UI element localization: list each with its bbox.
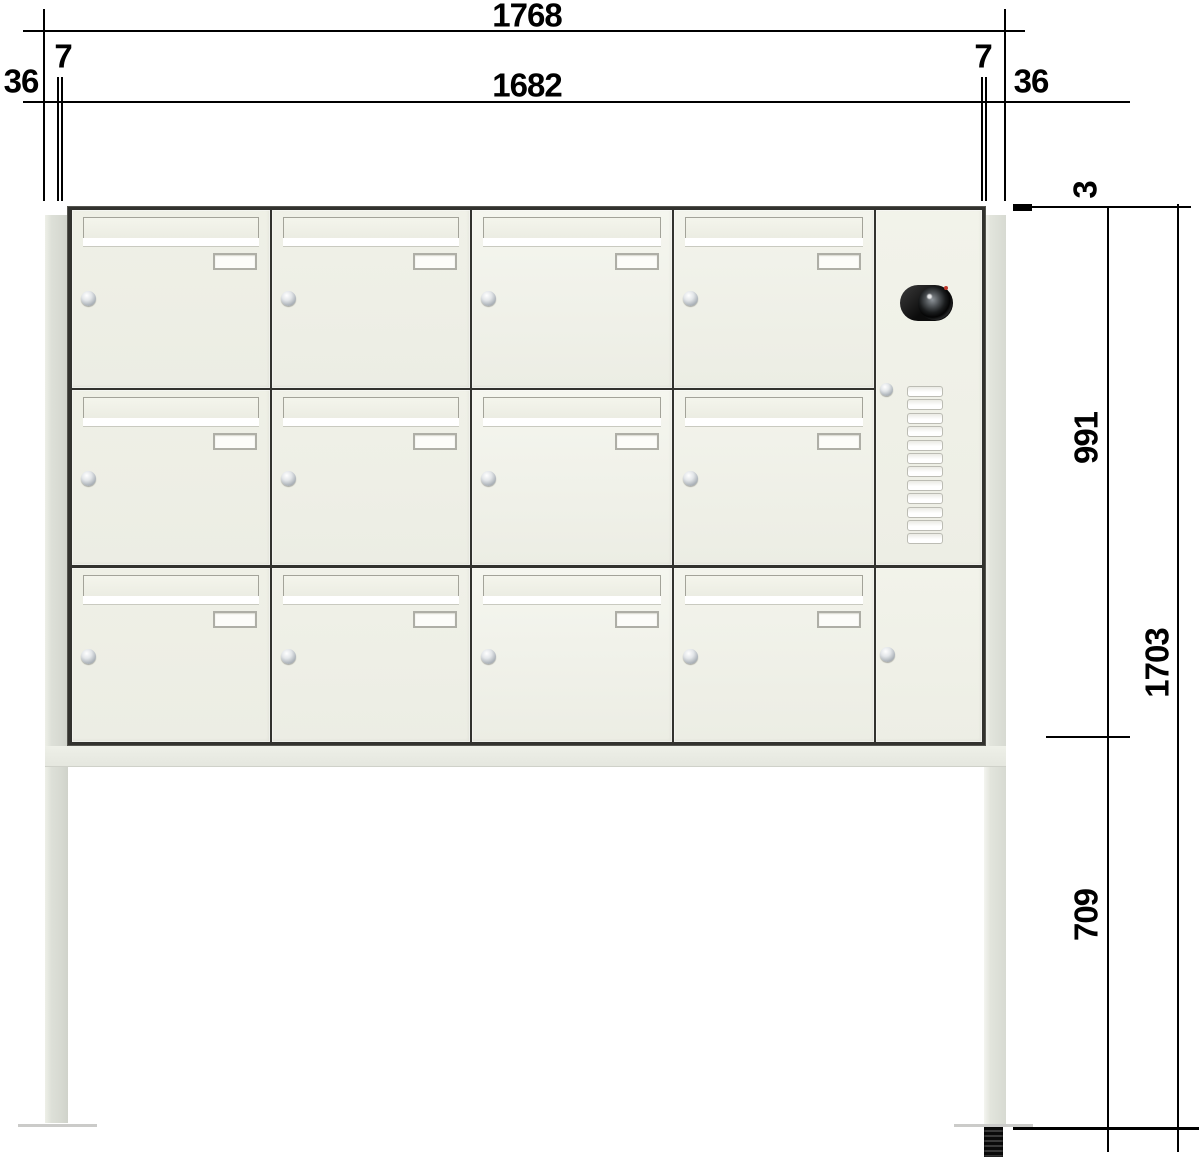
dim-line-top-gap — [1013, 206, 1191, 208]
name-plate — [413, 433, 457, 450]
dim-line-total-height — [1177, 204, 1179, 1152]
extension-line-right-outer — [1004, 9, 1006, 201]
name-plate — [817, 253, 861, 270]
flap-lip — [483, 596, 661, 604]
call-button-9 — [907, 493, 943, 504]
flap-lip — [483, 418, 661, 426]
extension-line-left-7a — [57, 77, 59, 201]
letter-flap — [83, 217, 259, 245]
mailbox-door-r2-c1 — [72, 390, 270, 565]
mailbox-lock — [281, 291, 296, 306]
dim-label-offset-right: 7 — [974, 40, 991, 73]
letter-flap — [283, 217, 459, 245]
dim-label-stand-height: 709 — [1070, 889, 1103, 941]
name-plate — [615, 611, 659, 628]
mailbox-door-r1-c3 — [472, 210, 672, 388]
letterbox-cabinet — [68, 207, 985, 745]
dim-label-side-left: 36 — [4, 65, 39, 98]
letter-flap — [283, 397, 459, 425]
flap-lip — [685, 418, 863, 426]
mailbox-door-r2-c3 — [472, 390, 672, 565]
name-plate — [817, 611, 861, 628]
mailbox-door-r3-c4 — [674, 568, 874, 742]
letter-flap — [483, 575, 661, 603]
letter-flap — [483, 217, 661, 245]
ground-line-left — [18, 1124, 97, 1127]
mailbox-lock — [481, 649, 496, 664]
flap-lip — [83, 596, 259, 604]
call-button-7 — [907, 466, 943, 477]
stand-leg-left — [45, 215, 68, 1123]
call-button-5 — [907, 440, 943, 451]
dim-tick-cabinet-bottom — [1046, 736, 1130, 738]
stand-leg-right — [984, 215, 1006, 1125]
letter-flap — [83, 397, 259, 425]
flap-lip — [83, 418, 259, 426]
letter-flap — [483, 397, 661, 425]
flap-lip — [283, 418, 459, 426]
dim-line-cabinet-stand — [1107, 207, 1109, 1152]
mailbox-door-r3-c3 — [472, 568, 672, 742]
extension-line-right-7b — [981, 77, 983, 201]
mailbox-lock — [281, 649, 296, 664]
mailbox-door-r1-c2 — [272, 210, 470, 388]
call-button-1 — [907, 386, 943, 397]
dim-line-ground — [1013, 1127, 1199, 1130]
mailbox-door-r2-c4 — [674, 390, 874, 565]
dim-tick-top-gap — [1013, 204, 1032, 211]
mailbox-lock — [81, 471, 96, 486]
camera-led-icon — [944, 286, 948, 290]
mailbox-lock — [683, 291, 698, 306]
mailbox-lock — [683, 471, 698, 486]
dim-line-body-width — [23, 101, 1130, 103]
mailbox-door-r2-c2 — [272, 390, 470, 565]
call-button-10 — [907, 507, 943, 518]
dim-label-body-width: 1682 — [492, 69, 561, 102]
name-plate — [213, 433, 257, 450]
extension-line-right-7a — [985, 77, 987, 201]
mailbox-lock — [81, 649, 96, 664]
mailbox-door-r3-c1 — [72, 568, 270, 742]
letter-flap — [685, 575, 863, 603]
name-plate — [413, 253, 457, 270]
mailbox-door-r3-c2 — [272, 568, 470, 742]
intercom-panel — [876, 210, 982, 565]
intercom-bottom-lock — [880, 647, 895, 662]
dim-label-top-gap: 3 — [1069, 181, 1102, 198]
dim-label-cabinet-height: 991 — [1070, 412, 1103, 464]
flap-lip — [685, 238, 863, 246]
name-plate — [615, 433, 659, 450]
call-button-12 — [907, 533, 943, 544]
call-button-6 — [907, 453, 943, 464]
flap-lip — [685, 596, 863, 604]
dim-label-total-height: 1703 — [1141, 628, 1174, 697]
name-plate — [213, 253, 257, 270]
extension-line-left-7b — [61, 77, 63, 201]
call-button-4 — [907, 426, 943, 437]
dim-label-overall-width: 1768 — [492, 0, 561, 32]
technical-drawing-canvas: 1768 1682 7 7 36 36 3 991 709 1703 — [0, 0, 1200, 1161]
flap-lip — [83, 238, 259, 246]
dim-label-offset-left: 7 — [54, 40, 71, 73]
flap-lip — [283, 238, 459, 246]
call-button-11 — [907, 520, 943, 531]
flap-lip — [283, 596, 459, 604]
call-button-8 — [907, 480, 943, 491]
mailbox-lock — [481, 291, 496, 306]
call-button-list — [907, 386, 943, 544]
stand-crossbar — [45, 746, 1006, 767]
camera-lens-icon — [918, 286, 952, 320]
mailbox-lock — [683, 649, 698, 664]
intercom-camera — [900, 285, 953, 321]
letter-flap — [283, 575, 459, 603]
mailbox-door-r1-c1 — [72, 210, 270, 388]
extension-line-left-outer — [43, 9, 45, 201]
letter-flap — [685, 217, 863, 245]
call-button-3 — [907, 413, 943, 424]
mailbox-door-r1-c4 — [674, 210, 874, 388]
flap-lip — [483, 238, 661, 246]
anchor-bolt — [984, 1127, 1003, 1157]
name-plate — [817, 433, 861, 450]
name-plate — [615, 253, 659, 270]
letter-flap — [685, 397, 863, 425]
mailbox-lock — [481, 471, 496, 486]
intercom-bottom-door — [876, 568, 982, 742]
dim-label-side-right: 36 — [1014, 65, 1049, 98]
intercom-service-lock — [880, 383, 893, 396]
letter-flap — [83, 575, 259, 603]
call-button-2 — [907, 399, 943, 410]
mailbox-lock — [281, 471, 296, 486]
mailbox-lock — [81, 291, 96, 306]
name-plate — [213, 611, 257, 628]
name-plate — [413, 611, 457, 628]
